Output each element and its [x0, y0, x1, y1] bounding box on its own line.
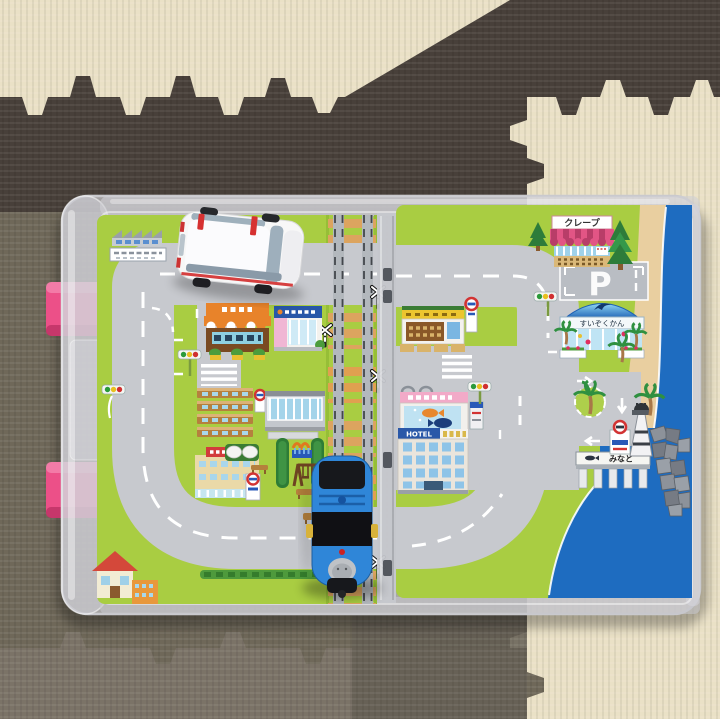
case-rim-highlight — [110, 199, 670, 204]
train-cab-roof — [312, 512, 372, 546]
right-map-page: P クレープ すいぞくかん — [396, 205, 692, 598]
harbor-kiosk-sign — [610, 421, 630, 454]
harbor-pier: みなと — [576, 452, 650, 488]
hinge-clip — [383, 452, 392, 468]
hotel-building: HOTEL — [398, 428, 468, 494]
parking-label: P — [588, 265, 611, 303]
hotel-label: HOTEL — [406, 431, 432, 439]
hinge-clip — [383, 560, 392, 576]
hinge-clip — [383, 268, 392, 281]
train-coupling — [338, 590, 346, 598]
aquarium-label: すいぞくかん — [580, 319, 625, 328]
factory-sign — [110, 230, 166, 261]
case-spine — [377, 213, 396, 603]
bus-stop-sign — [466, 298, 478, 332]
crepe-shop: クレープ — [550, 216, 614, 267]
convenience-store — [274, 306, 325, 351]
bus-stop-sign — [255, 390, 265, 412]
fish-shop — [400, 387, 468, 433]
crepe-shop-label: クレープ — [564, 217, 600, 229]
vending-machine — [470, 402, 483, 429]
train-station — [265, 391, 325, 439]
small-apartment — [132, 580, 158, 604]
case-lip-highlight — [68, 210, 75, 600]
photo-toy-playmat-scene: P クレープ すいぞくかん — [0, 0, 720, 719]
hinge-clip — [383, 290, 392, 303]
bus-stop-sign — [246, 474, 260, 501]
parking-lot: P — [560, 262, 648, 303]
shop-building — [204, 303, 271, 360]
white-domes — [225, 444, 259, 461]
train-bunker — [319, 461, 365, 489]
harbor-label: みなと — [609, 455, 633, 464]
